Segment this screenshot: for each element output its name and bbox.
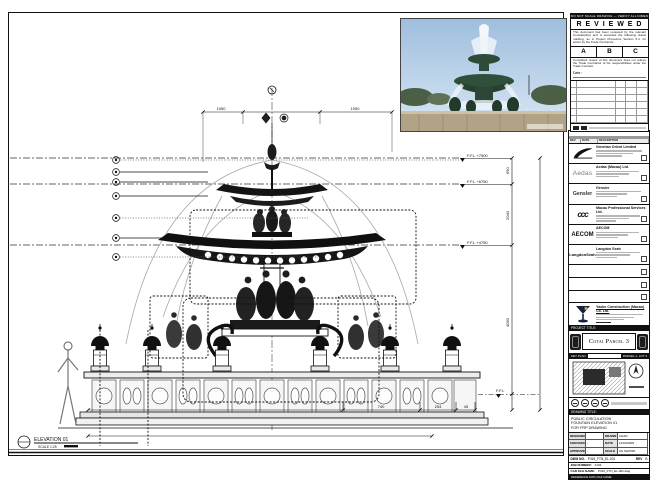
drawn-value: CHAD: [618, 433, 648, 441]
designed-label: DESIGNED: [569, 433, 586, 441]
key-plan-map: [569, 359, 649, 398]
scale-figure: [58, 342, 78, 424]
rev-col-header: REV: [569, 139, 581, 143]
stamp-signature-grid: [571, 80, 648, 123]
contractor-name: Yaoke Construction (Macau) Co. Ltd.: [596, 305, 647, 313]
stamp-paragraph: Consultant review of this document does …: [573, 59, 646, 69]
cad-file-value: P316_FTN_EL-001.dwg: [597, 469, 632, 474]
stamp-grade-row: A B C: [571, 46, 648, 58]
description-col-header: DESCRIPTION: [598, 139, 649, 143]
company-name: Gensler: [596, 186, 647, 190]
finial-ornaments: [262, 113, 288, 144]
status-checkbox: [641, 236, 647, 242]
level-markers: F.F.L +7500 F.F.L +6750 F.F.L +4750 F.F.…: [460, 153, 540, 398]
rev-label: REV: [634, 456, 644, 462]
elevation-label: ELEVATION 01: [34, 437, 68, 443]
dwg-no-row: DWG NO. P316_FTN_EL-001 REV B: [569, 456, 649, 463]
svg-text:254: 254: [435, 404, 442, 409]
top-dimension: 1050 1050: [201, 106, 393, 162]
company-name: Aedas (Macau) Ltd.: [596, 165, 647, 169]
company-name: Macau Professional Services Ltd.: [596, 206, 647, 214]
date-label: DATE: [604, 440, 618, 448]
aedas-logo: Aedas: [569, 164, 596, 183]
aecom-logo: AECOM: [569, 225, 596, 244]
contractor-block: Yaoke Construction (Macau) Co. Ltd.: [569, 303, 649, 325]
elevation-tag: ELEVATION 01 SCALE 1:25: [18, 436, 138, 449]
stamp-footer-logos: [571, 123, 648, 131]
venetian-orient-logo: [569, 144, 596, 163]
svg-text:F.F.L +7500: F.F.L +7500: [467, 153, 488, 158]
dwg-no-label: DWG NO.: [569, 456, 586, 462]
fountain-photo-image: [401, 19, 566, 131]
designed-value: [586, 433, 604, 441]
drawing-title: PUBLIC CIRCULATION FOUNTAIN ELEVATION 01…: [569, 415, 649, 433]
drawn-label: DRAWN: [604, 433, 618, 441]
project-title-banner: Cotai Parcel 3: [569, 331, 649, 354]
rev-value: B: [644, 456, 649, 462]
empty-consultant-box: [569, 265, 649, 278]
svg-text:45: 45: [464, 404, 469, 409]
svg-text:F.F.L: F.F.L: [496, 388, 505, 393]
job-number-label: JOB NUMBER:: [569, 463, 593, 468]
svg-text:4050: 4050: [505, 317, 510, 327]
svg-text:740: 740: [378, 404, 385, 409]
company-block-langdonseah: LangdonSeah Langdon Seah: [569, 245, 649, 265]
approved-value: -: [586, 448, 604, 456]
grade-a: A: [571, 47, 597, 57]
company-block-aedas: Aedas Aedas (Macau) Ltd.: [569, 164, 649, 184]
date-col-header: DATE: [581, 139, 598, 143]
svg-text:2040: 2040: [505, 210, 510, 220]
balustrade: [58, 372, 513, 428]
grade-c: C: [623, 47, 648, 57]
empty-consultant-box: [569, 291, 649, 304]
dwg-no-value: P316_FTN_EL-001: [586, 456, 634, 462]
photo-watermark: [527, 124, 563, 129]
gensler-logo: Gensler: [569, 184, 596, 203]
contractor-logo: [569, 303, 596, 324]
stamp-title: R E V I E W E D: [571, 19, 648, 30]
company-block-mps: ccc Macau Professional Services Ltd.: [569, 205, 649, 225]
empty-consultant-box: [569, 278, 649, 291]
banner-ornament-right: [637, 334, 648, 350]
fountain-photo: [400, 18, 567, 132]
job-number-value: 3103: [593, 463, 603, 468]
dim-label: 1050: [217, 106, 227, 111]
langdon-seah-logo: LangdonSeah: [569, 245, 596, 264]
company-name: Venetian Orient Limited: [596, 145, 647, 149]
stamp-date-field: Date :: [573, 71, 646, 78]
company-block-aecom: AECOM AECOM: [569, 225, 649, 245]
status-checkbox: [641, 155, 647, 161]
company-name: Langdon Seah: [596, 247, 647, 251]
status-checkbox: [641, 216, 647, 222]
mps-logo: ccc: [569, 205, 596, 224]
dim-label: 1050: [351, 106, 361, 111]
banner-ornament-left: [570, 334, 581, 350]
grade-b: B: [597, 47, 623, 57]
svg-text:690: 690: [505, 167, 510, 174]
drawing-title-line: FOR FRP DRAWING: [571, 426, 647, 431]
project-title: Cotai Parcel 3: [589, 338, 629, 345]
right-dimensions: 690 2040 4050: [505, 156, 542, 411]
date-value: 12/04/2009: [618, 440, 648, 448]
revision-table: REV DATE DESCRIPTION: [569, 131, 649, 144]
reviewed-stamp: DO NOT SCALE DRAWING — VERIFY ALL DIMENS…: [570, 13, 649, 132]
cad-file-label: CAD FILE NAME:: [569, 469, 597, 474]
checked-label: CHECKED: [569, 440, 586, 448]
scale-label: SCALE: [604, 448, 618, 456]
status-checkbox: [641, 196, 647, 202]
approved-label: APPROVED: [569, 448, 586, 456]
scale-symbols-row: [569, 398, 649, 410]
signoff-table: DESIGNED DRAWN CHAD CHECKED - DATE 12/04…: [569, 433, 649, 457]
status-checkbox: [641, 175, 647, 181]
fountain-finial: [264, 144, 280, 190]
company-block-venetian: Venetian Orient Limited: [569, 144, 649, 164]
stamp-paragraph: This document has been reviewed by the r…: [573, 31, 646, 45]
svg-text:F.F.L +6750: F.F.L +6750: [467, 179, 488, 184]
elevation-scale: SCALE 1:25: [38, 445, 57, 449]
company-block-gensler: Gensler Gensler: [569, 184, 649, 204]
status-checkbox: [641, 256, 647, 262]
company-name: AECOM: [596, 226, 647, 230]
scale-value: AS SHOWN: [618, 448, 648, 456]
checked-value: -: [586, 440, 604, 448]
drawing-sheet: { "stamp": { "bar_note": "DO NOT SCALE D…: [0, 0, 650, 488]
svg-text:F.F.L +4750: F.F.L +4750: [467, 240, 488, 245]
reference-dwg-label: REFERENCE DWG FILE NAME:: [569, 475, 649, 479]
title-block: REV DATE DESCRIPTION Venetian Orient Lim…: [568, 130, 650, 480]
